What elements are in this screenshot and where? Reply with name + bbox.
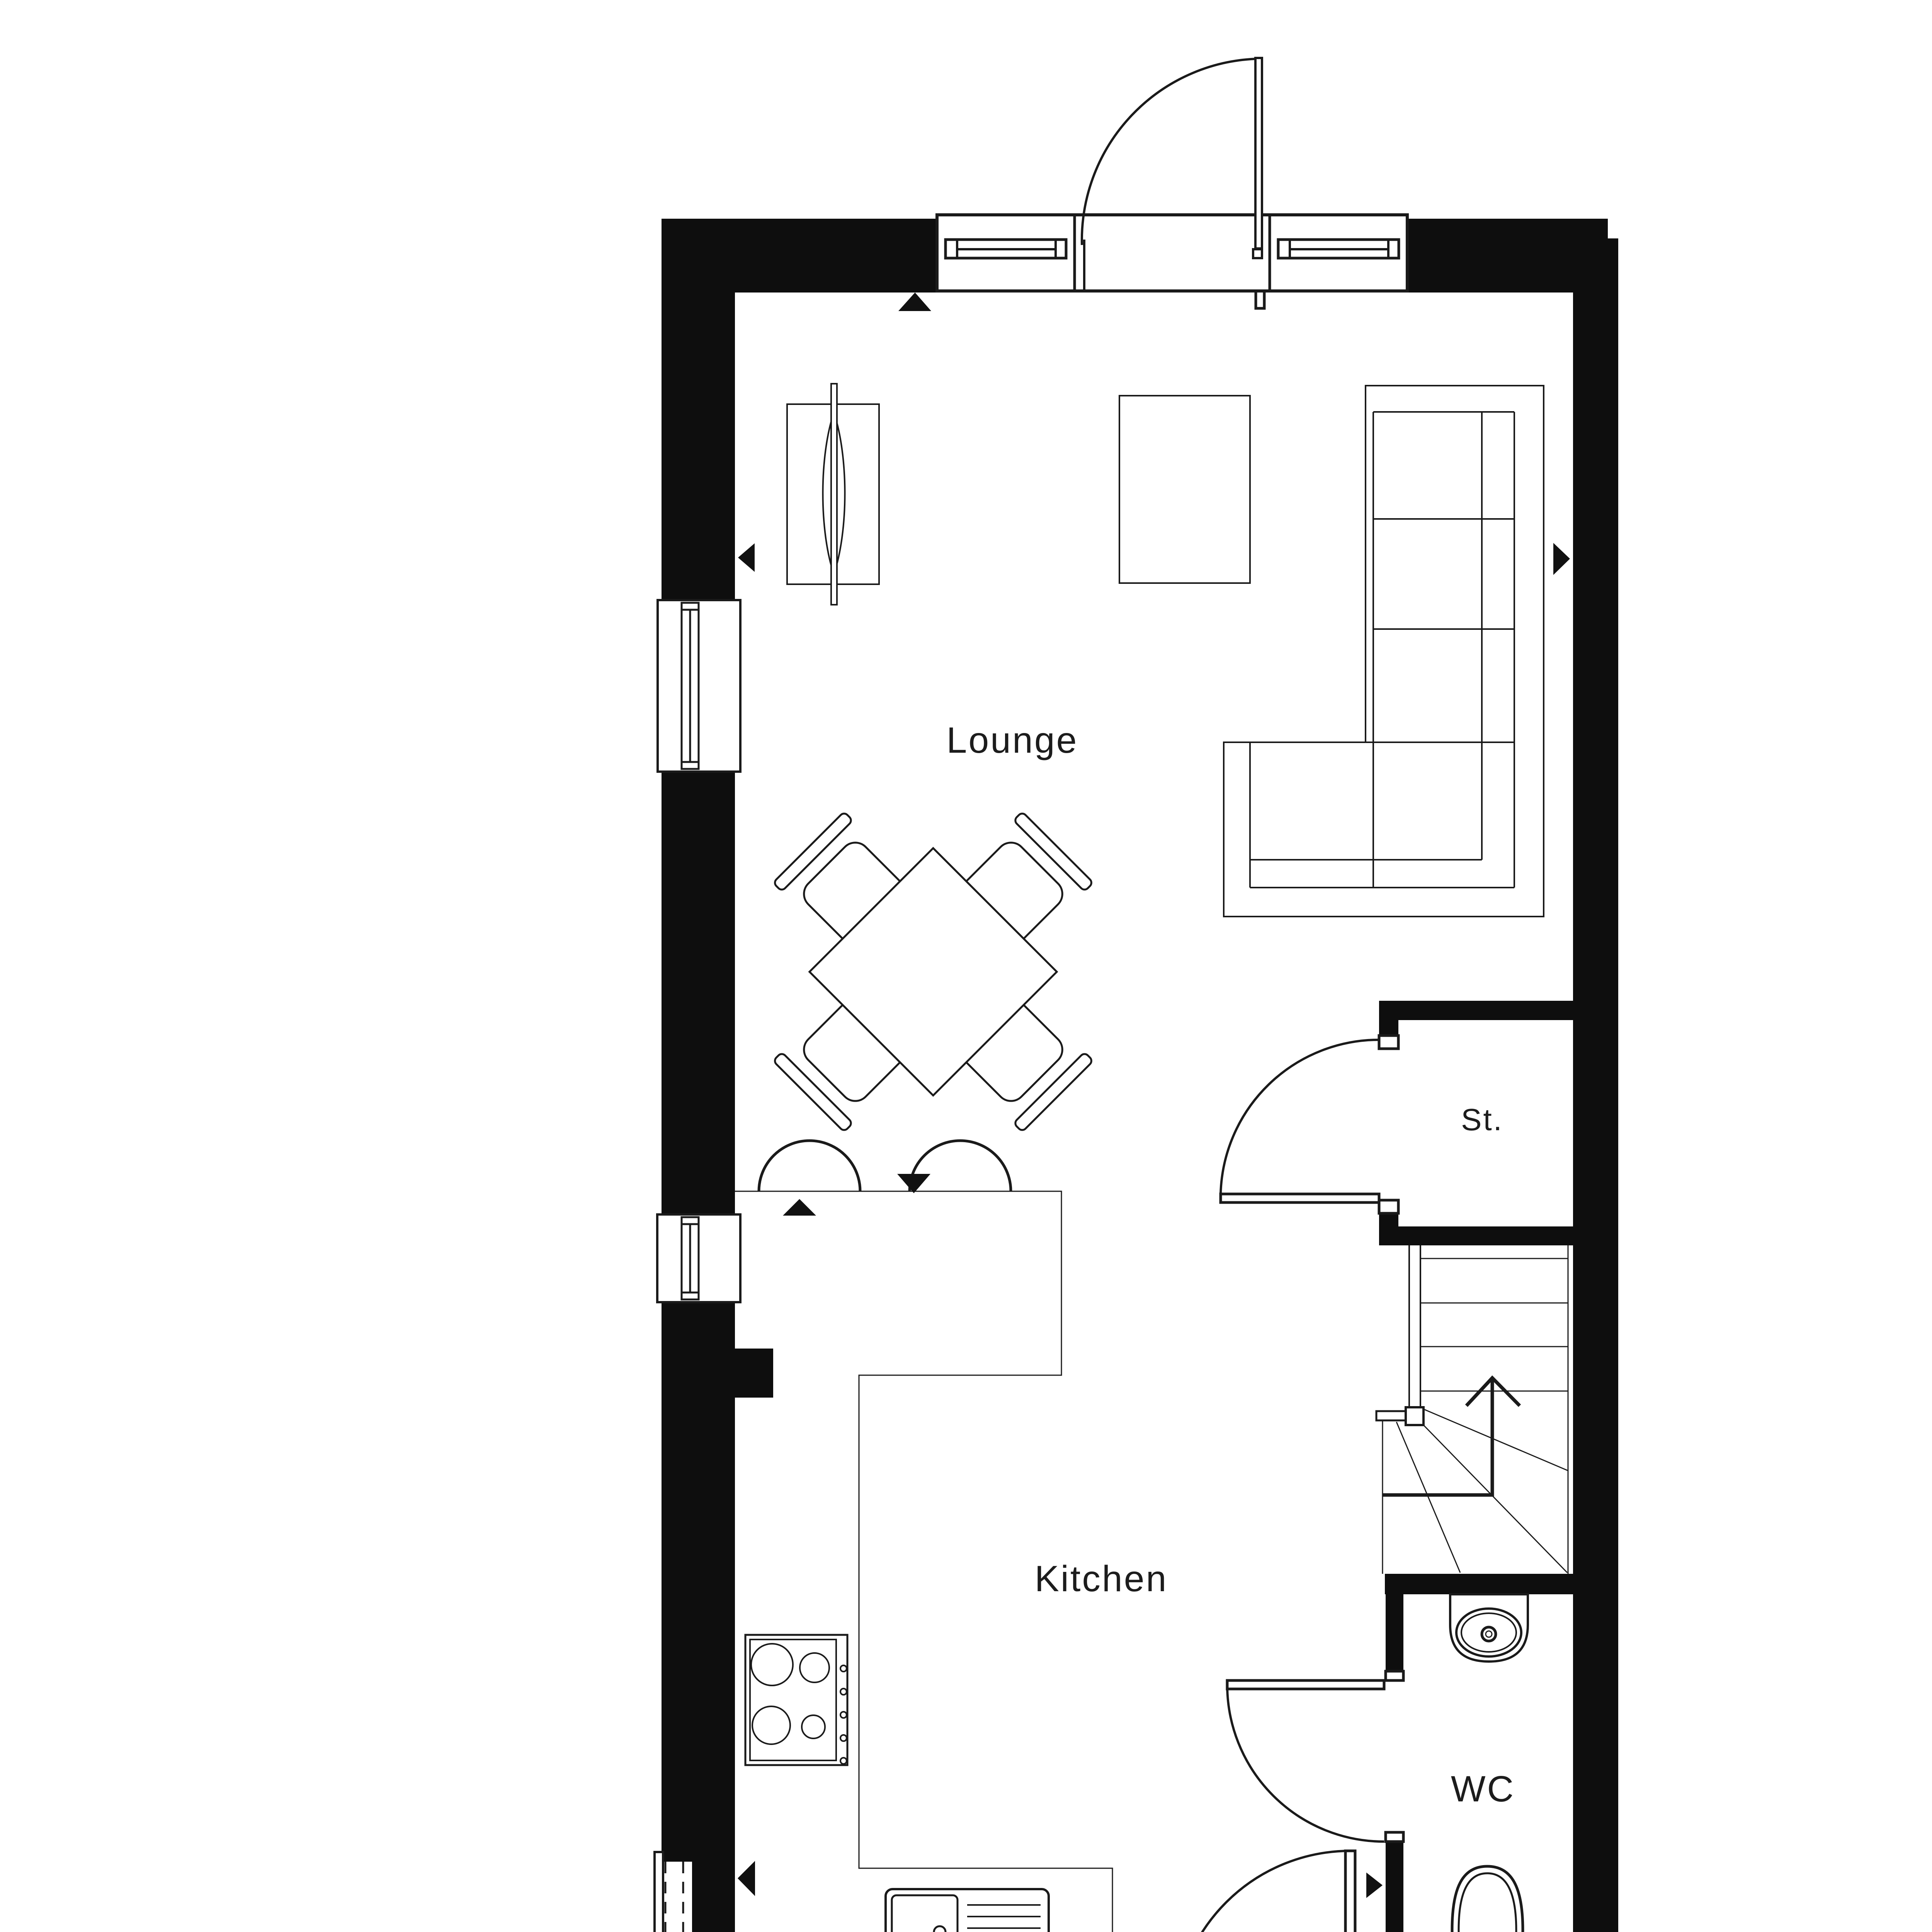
svg-text:WC: WC [1451, 1769, 1515, 1810]
svg-text:Lounge: Lounge [946, 720, 1078, 761]
svg-text:Kitchen: Kitchen [1035, 1558, 1168, 1599]
svg-text:St.: St. [1461, 1102, 1503, 1137]
